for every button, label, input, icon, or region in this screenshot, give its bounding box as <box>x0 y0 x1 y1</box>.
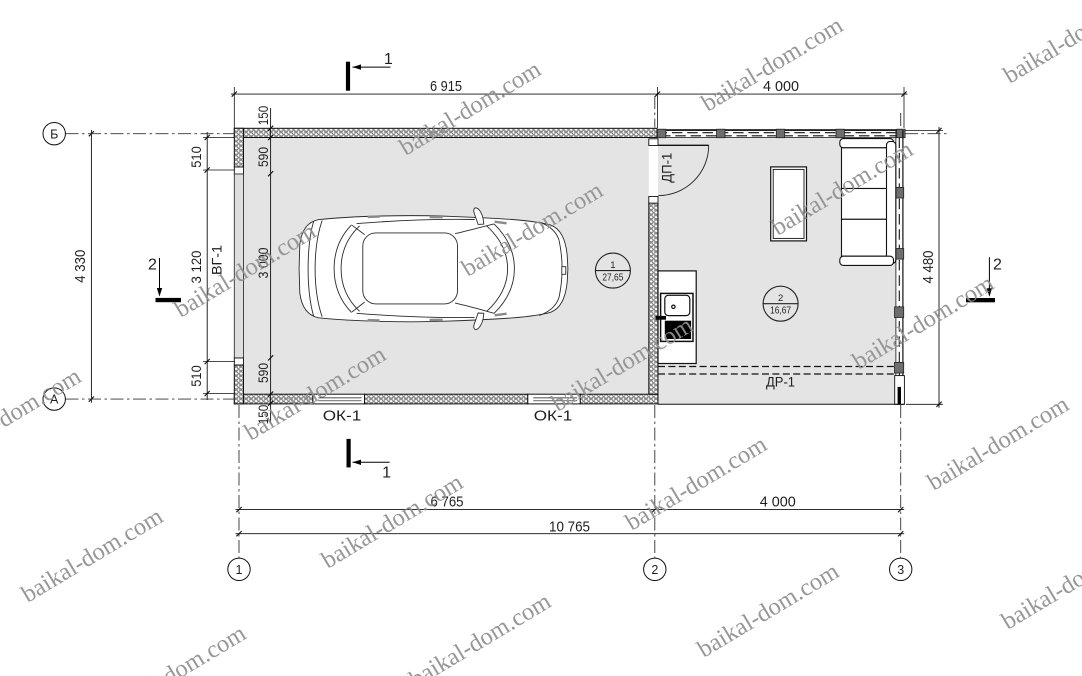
svg-text:1: 1 <box>610 260 615 271</box>
svg-text:ДР-1: ДР-1 <box>766 374 795 389</box>
svg-text:2: 2 <box>993 257 1002 274</box>
svg-text:3 120: 3 120 <box>188 250 204 283</box>
svg-text:baikal-dom.com: baikal-dom.com <box>697 12 848 117</box>
svg-text:baikal-dom.com: baikal-dom.com <box>999 0 1082 89</box>
svg-text:2: 2 <box>651 563 658 577</box>
svg-text:590: 590 <box>256 363 271 383</box>
svg-text:baikal-dom.com: baikal-dom.com <box>923 391 1074 496</box>
svg-text:16,67: 16,67 <box>770 304 791 316</box>
svg-text:6 915: 6 915 <box>430 78 462 95</box>
svg-text:baikal-dom.com: baikal-dom.com <box>317 469 468 574</box>
svg-text:4 480: 4 480 <box>920 251 937 284</box>
svg-text:1: 1 <box>384 51 393 68</box>
svg-text:4 330: 4 330 <box>72 250 89 283</box>
svg-text:590: 590 <box>256 147 271 167</box>
svg-text:1: 1 <box>236 563 243 577</box>
svg-text:10 765: 10 765 <box>549 519 590 536</box>
svg-text:baikal-dom.com: baikal-dom.com <box>405 588 556 676</box>
svg-text:baikal-dom.com: baikal-dom.com <box>693 558 844 663</box>
svg-text:2: 2 <box>778 293 783 304</box>
svg-text:baikal-dom.com: baikal-dom.com <box>0 363 86 468</box>
svg-text:150: 150 <box>256 106 271 126</box>
svg-text:baikal-dom.com: baikal-dom.com <box>621 431 772 536</box>
svg-text:3: 3 <box>897 563 904 577</box>
svg-text:baikal-dom.com: baikal-dom.com <box>17 503 168 608</box>
svg-text:ДП-1: ДП-1 <box>659 153 674 183</box>
svg-text:4 000: 4 000 <box>760 494 796 511</box>
svg-text:510: 510 <box>188 365 204 387</box>
svg-text:baikal-dom.com: baikal-dom.com <box>100 620 251 676</box>
svg-text:ОК-1: ОК-1 <box>323 407 362 424</box>
svg-text:2: 2 <box>148 257 157 274</box>
svg-text:baikal-dom.com: baikal-dom.com <box>997 530 1082 635</box>
svg-text:Б: Б <box>50 127 58 141</box>
svg-text:27,65: 27,65 <box>602 271 623 283</box>
svg-text:510: 510 <box>188 146 204 168</box>
svg-text:1: 1 <box>382 464 391 481</box>
